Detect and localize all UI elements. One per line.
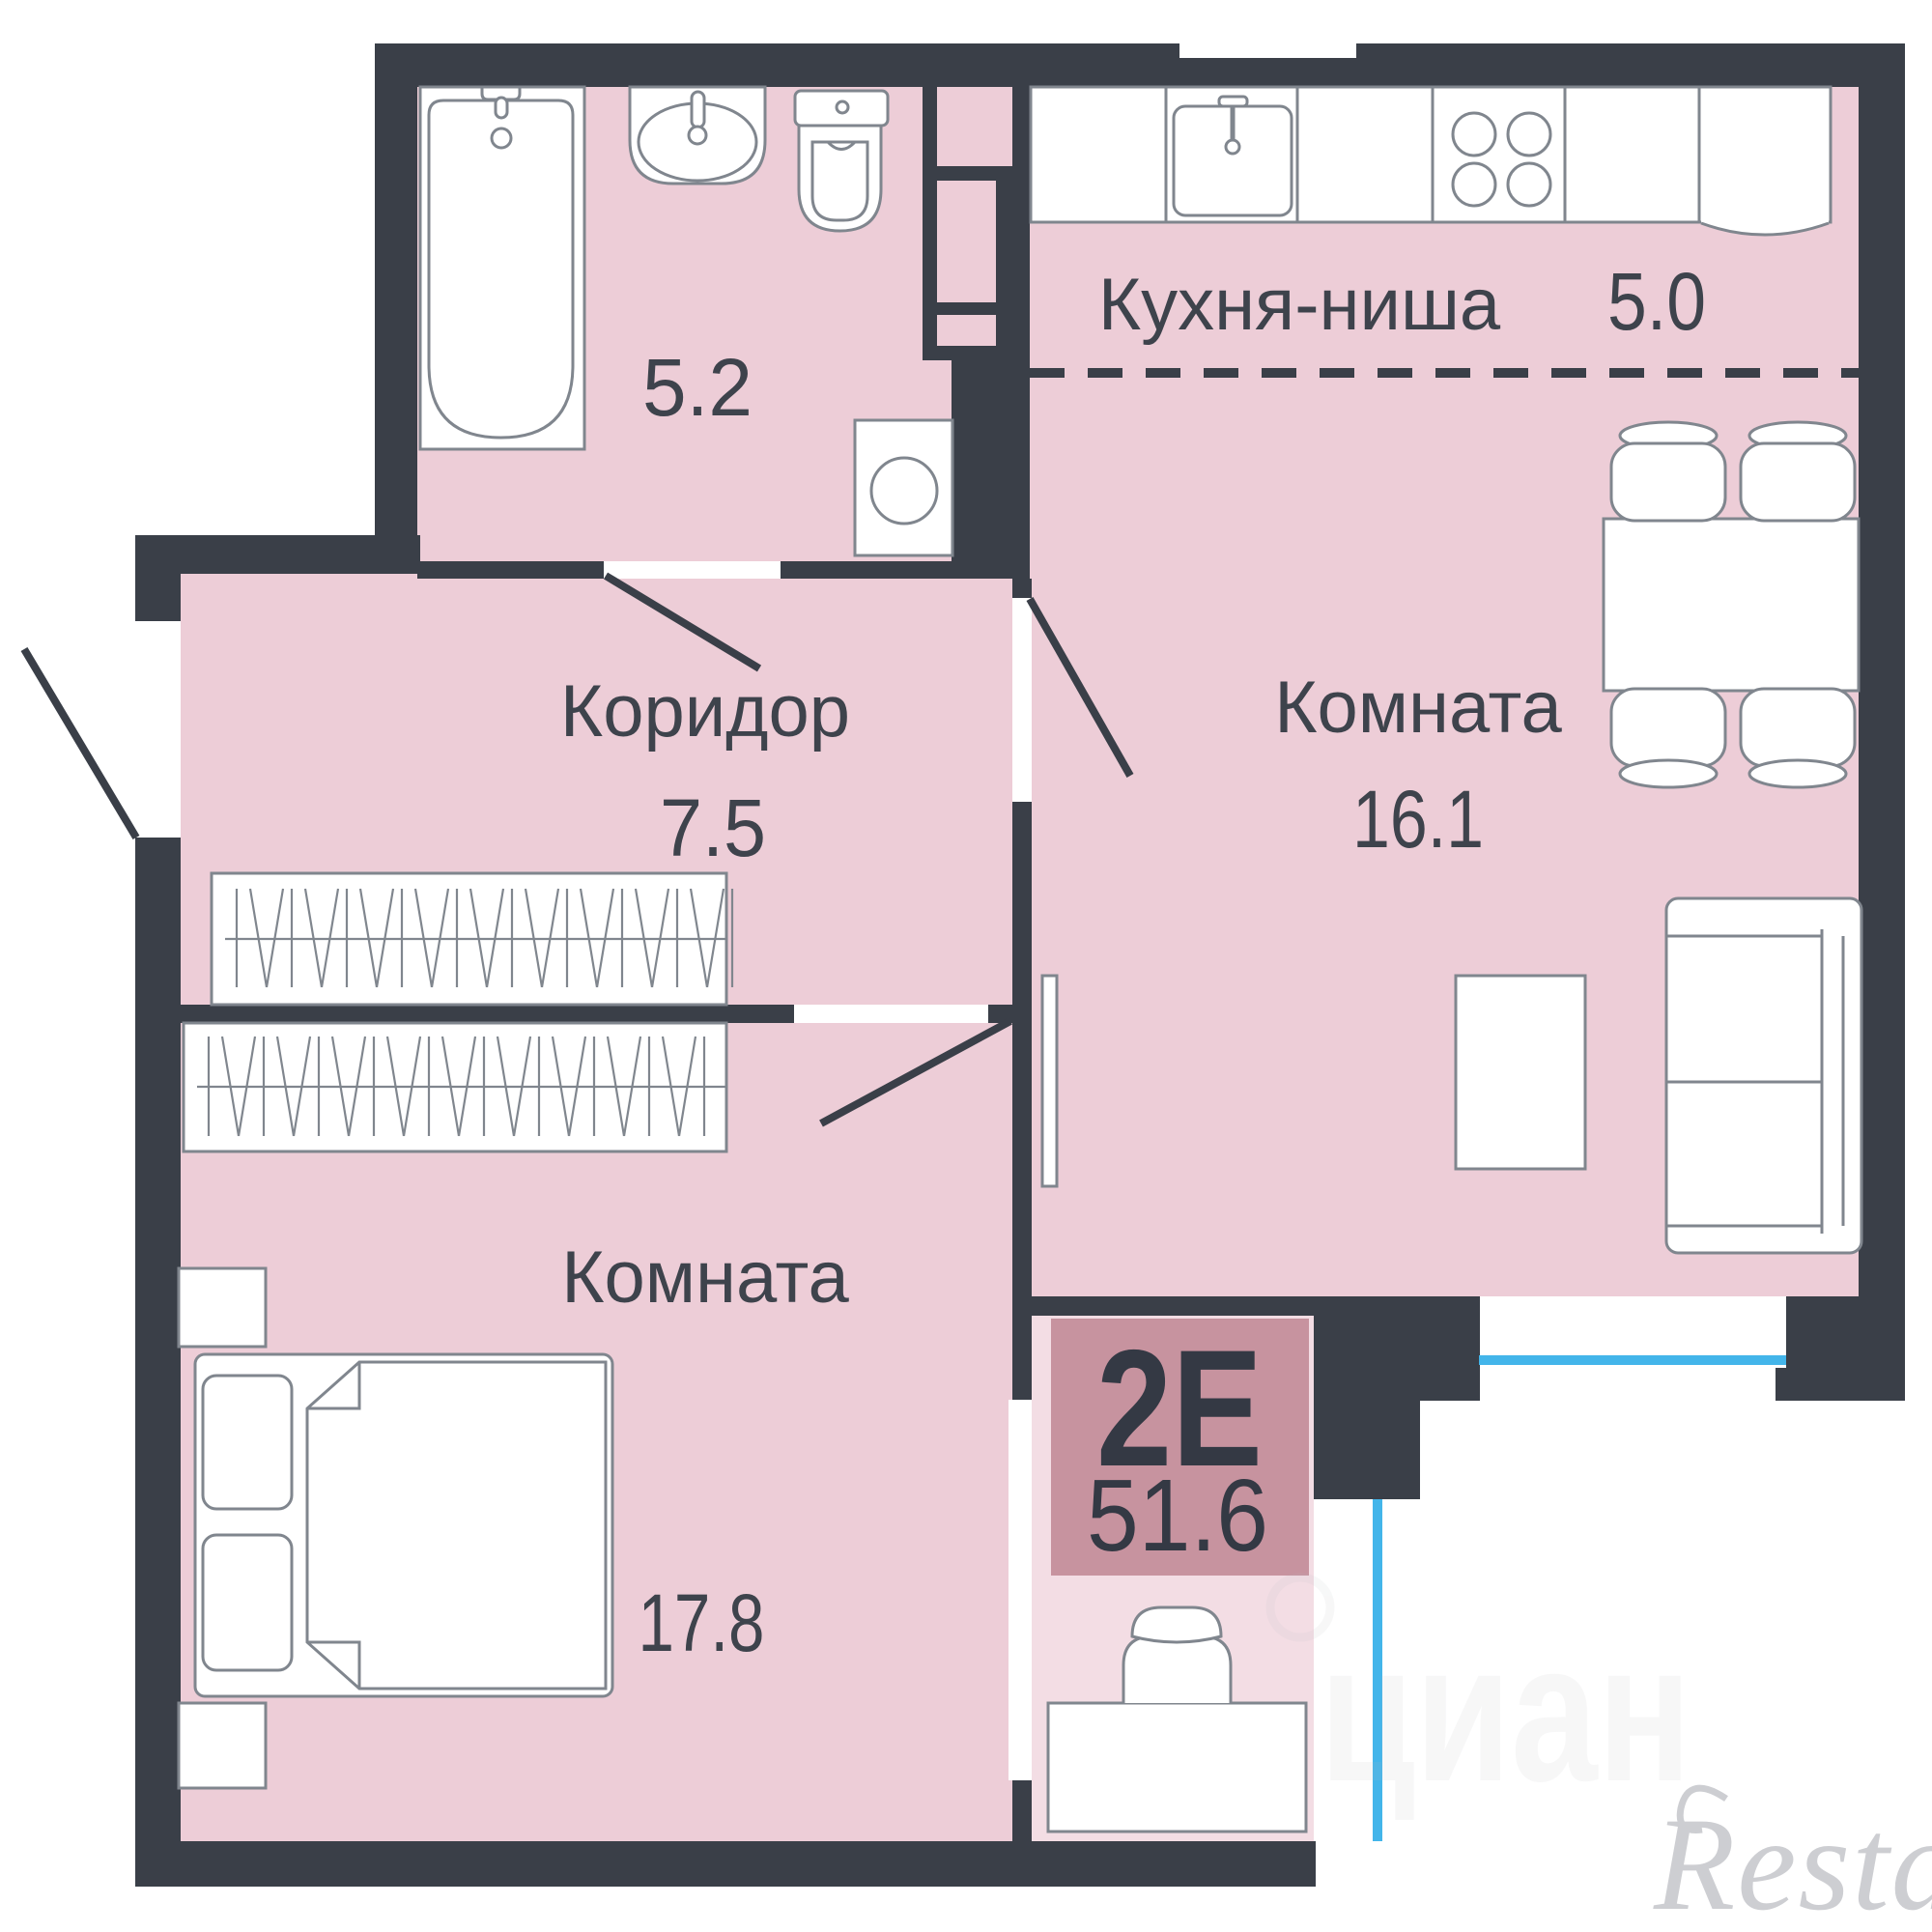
- svg-text:51.6: 51.6: [1087, 1459, 1268, 1573]
- svg-text:5.2: 5.2: [642, 342, 753, 433]
- svg-text:Комната: Комната: [561, 1236, 849, 1319]
- svg-text:Коридор: Коридор: [560, 670, 850, 753]
- svg-text:17.8: 17.8: [639, 1577, 765, 1668]
- svg-text:16.1: 16.1: [1352, 774, 1484, 865]
- svg-text:5.0: 5.0: [1607, 256, 1706, 347]
- svg-text:Комната: Комната: [1274, 667, 1562, 749]
- svg-text:Restate: Restate: [1653, 1790, 1932, 1932]
- svg-text:7.5: 7.5: [660, 782, 766, 873]
- svg-text:циан: циан: [1320, 1602, 1691, 1823]
- svg-text:Кухня-ниша: Кухня-ниша: [1098, 264, 1501, 346]
